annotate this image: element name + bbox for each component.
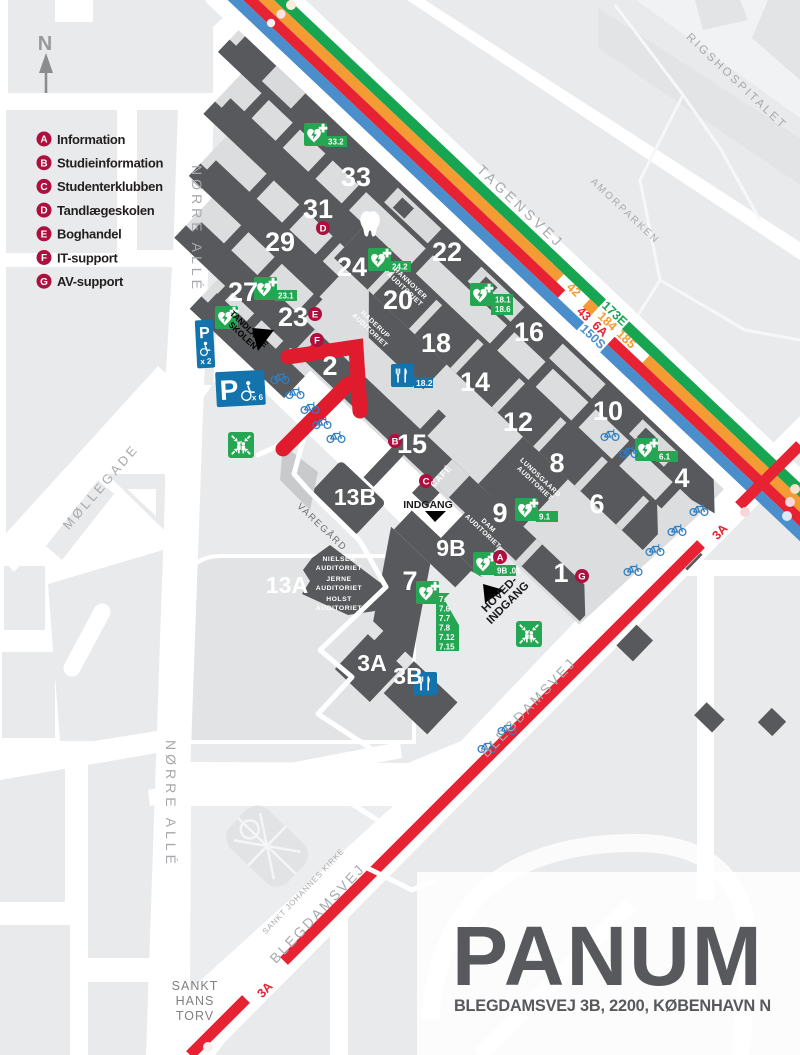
svg-text:3B: 3B — [393, 663, 422, 689]
svg-text:Studenterklubben: Studenterklubben — [57, 179, 163, 194]
svg-text:18.6: 18.6 — [495, 305, 511, 314]
svg-text:29: 29 — [265, 227, 295, 257]
svg-text:22: 22 — [432, 237, 462, 267]
svg-text:1: 1 — [553, 558, 568, 588]
svg-text:BLEGDAMSVEJ 3B, 2200, KØBENHAV: BLEGDAMSVEJ 3B, 2200, KØBENHAVN N — [454, 997, 771, 1015]
svg-text:6.1: 6.1 — [659, 453, 671, 462]
svg-text:Information: Information — [57, 132, 126, 147]
svg-text:9B .01: 9B .01 — [497, 567, 521, 576]
svg-text:IT-support: IT-support — [57, 250, 119, 265]
svg-text:HANS: HANS — [176, 994, 215, 1008]
svg-text:F: F — [314, 335, 320, 346]
svg-text:NØRRE ALLÉ: NØRRE ALLÉ — [189, 165, 205, 293]
svg-text:NØRRE ALLÉ: NØRRE ALLÉ — [163, 740, 179, 868]
svg-text:NIELSEN: NIELSEN — [323, 556, 356, 563]
svg-text:D: D — [40, 206, 47, 217]
svg-text:31: 31 — [303, 194, 333, 224]
svg-text:JERNE: JERNE — [326, 576, 351, 583]
svg-text:7: 7 — [402, 566, 417, 596]
svg-text:15: 15 — [397, 429, 427, 459]
svg-text:13A: 13A — [266, 572, 308, 598]
svg-text:9B: 9B — [436, 535, 465, 561]
svg-text:12: 12 — [503, 407, 533, 437]
svg-text:7.15: 7.15 — [439, 643, 455, 652]
svg-text:INDGANG: INDGANG — [403, 499, 453, 511]
svg-text:AUDITORIET: AUDITORIET — [316, 565, 363, 572]
svg-text:9.1: 9.1 — [539, 513, 551, 522]
svg-text:G: G — [40, 277, 48, 288]
svg-text:PANUM: PANUM — [452, 909, 764, 1003]
svg-text:C: C — [40, 182, 47, 193]
svg-text:3A: 3A — [357, 650, 386, 676]
svg-text:6: 6 — [589, 489, 604, 519]
svg-text:Studieinformation: Studieinformation — [57, 156, 163, 171]
svg-text:AUDITORIET: AUDITORIET — [316, 585, 363, 592]
svg-text:23: 23 — [278, 302, 308, 332]
svg-text:23.1: 23.1 — [278, 292, 294, 301]
svg-text:14: 14 — [460, 367, 490, 397]
svg-text:8: 8 — [549, 448, 564, 478]
svg-text:33: 33 — [341, 162, 371, 192]
svg-text:F: F — [41, 253, 47, 264]
svg-text:7.12: 7.12 — [439, 633, 455, 642]
svg-text:E: E — [312, 309, 318, 320]
svg-text:7.7: 7.7 — [439, 614, 451, 623]
svg-text:2: 2 — [322, 351, 337, 381]
svg-text:AUDITORIET: AUDITORIET — [316, 605, 363, 612]
svg-text:10: 10 — [593, 396, 623, 426]
svg-text:P: P — [219, 374, 239, 406]
svg-text:Tandlægeskolen: Tandlægeskolen — [57, 203, 155, 218]
svg-text:A: A — [497, 552, 504, 563]
svg-text:A: A — [40, 135, 47, 146]
svg-text:7.8: 7.8 — [439, 624, 451, 633]
svg-text:E: E — [41, 229, 48, 240]
svg-text:AV-support: AV-support — [57, 274, 124, 289]
svg-text:18.2: 18.2 — [416, 378, 433, 388]
svg-text:B: B — [40, 158, 47, 169]
svg-text:N: N — [38, 33, 52, 55]
svg-text:13B: 13B — [334, 484, 376, 510]
svg-text:TORV: TORV — [176, 1009, 214, 1023]
svg-text:HOLST: HOLST — [326, 596, 352, 603]
svg-text:16: 16 — [514, 317, 544, 347]
svg-text:SANKT: SANKT — [172, 979, 219, 993]
svg-text:33.2: 33.2 — [328, 138, 344, 147]
svg-text:18.1: 18.1 — [495, 296, 511, 305]
svg-text:D: D — [320, 223, 327, 234]
svg-text:9: 9 — [492, 498, 507, 528]
svg-text:G: G — [578, 571, 585, 582]
svg-text:24: 24 — [337, 252, 367, 282]
svg-text:4: 4 — [674, 463, 689, 493]
svg-text:Boghandel: Boghandel — [57, 227, 121, 242]
svg-text:27: 27 — [228, 277, 258, 307]
svg-text:P: P — [199, 325, 211, 343]
svg-text:x 2: x 2 — [200, 357, 212, 367]
svg-text:18: 18 — [421, 328, 451, 358]
svg-text:x 6: x 6 — [252, 393, 264, 403]
